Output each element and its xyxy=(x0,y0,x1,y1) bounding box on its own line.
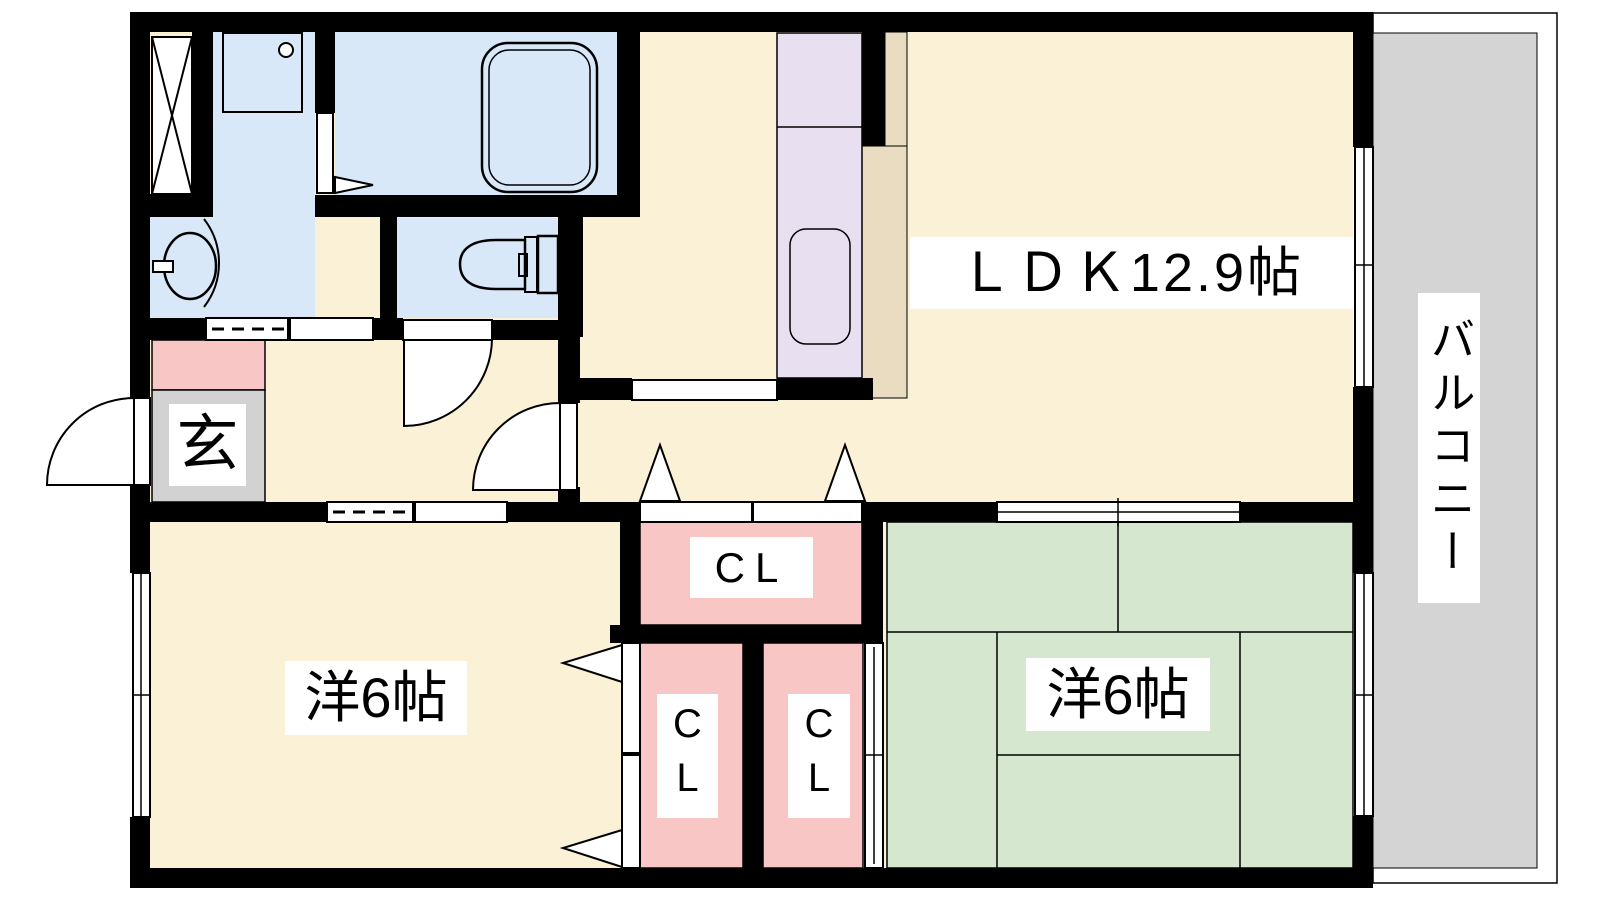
shoe-cabinet xyxy=(152,340,265,390)
washing-machine-icon xyxy=(223,33,302,112)
toilet-door-leaf xyxy=(403,320,492,340)
window-ldk-balcony xyxy=(1355,147,1373,387)
closet-hall-label: CL xyxy=(690,537,813,598)
bathroom-floor xyxy=(335,32,617,195)
western-room-right-label: 洋6帖 xyxy=(1026,658,1210,731)
bathroom-door-leaf xyxy=(317,113,333,193)
kitchen-opening xyxy=(632,380,777,400)
entrance-label: 玄 xyxy=(169,404,246,486)
entrance-door-leaf xyxy=(134,398,150,485)
western-room-left-label: 洋6帖 xyxy=(285,661,467,735)
balcony-label: バルコニー xyxy=(1418,293,1480,603)
green-room-sliding-door xyxy=(997,498,1240,526)
washroom-sliding-door xyxy=(206,318,373,340)
ldk-door-leaf xyxy=(560,403,577,490)
closet-right-sliding-door xyxy=(865,643,883,868)
west-room-sliding-door xyxy=(327,502,507,522)
closet-lower-left-label: CL xyxy=(657,694,718,818)
window-west xyxy=(133,573,150,817)
pipe-space-icon xyxy=(152,37,192,194)
closet-lower-right-label: CL xyxy=(788,694,850,818)
entrance-door-swing xyxy=(47,398,134,485)
window-room-balcony xyxy=(1355,573,1373,816)
toilet-floor xyxy=(397,218,558,318)
floor-plan: ＬＤＫ12.9帖 バルコニー 玄 洋6帖 洋6帖 CL CL CL xyxy=(0,0,1600,900)
ldk-label: ＬＤＫ12.9帖 xyxy=(910,237,1353,309)
